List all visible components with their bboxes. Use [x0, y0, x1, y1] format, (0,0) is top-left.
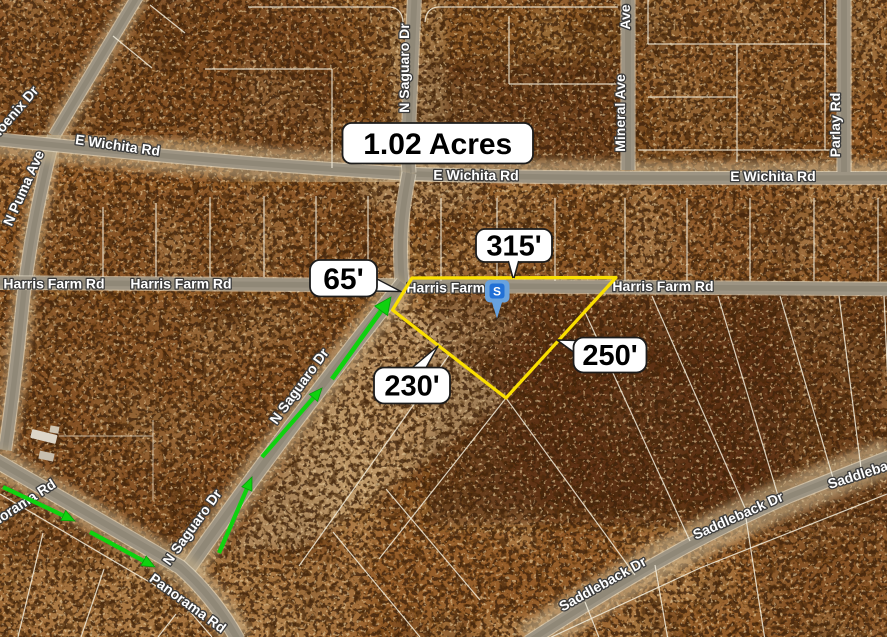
svg-text:Harris Farm Rd: Harris Farm Rd — [3, 276, 104, 292]
svg-text:315': 315' — [486, 231, 541, 263]
svg-text:E Wichita Rd: E Wichita Rd — [433, 167, 519, 184]
svg-text:E Wichita Rd: E Wichita Rd — [730, 168, 815, 184]
svg-text:Harris Farm Rd: Harris Farm Rd — [612, 278, 713, 294]
svg-text:250': 250' — [582, 340, 637, 372]
svg-text:65': 65' — [323, 263, 364, 296]
svg-text:N Saguaro Dr: N Saguaro Dr — [396, 23, 412, 113]
svg-text:230': 230' — [384, 371, 439, 403]
svg-text:Ave: Ave — [617, 4, 633, 29]
svg-text:1.02 Acres: 1.02 Acres — [363, 128, 512, 161]
svg-text:Harris Farm Rd: Harris Farm Rd — [130, 276, 231, 292]
svg-text:Mineral Ave: Mineral Ave — [612, 74, 628, 152]
svg-text:Parlay Rd: Parlay Rd — [827, 93, 843, 158]
svg-text:S: S — [493, 285, 501, 299]
